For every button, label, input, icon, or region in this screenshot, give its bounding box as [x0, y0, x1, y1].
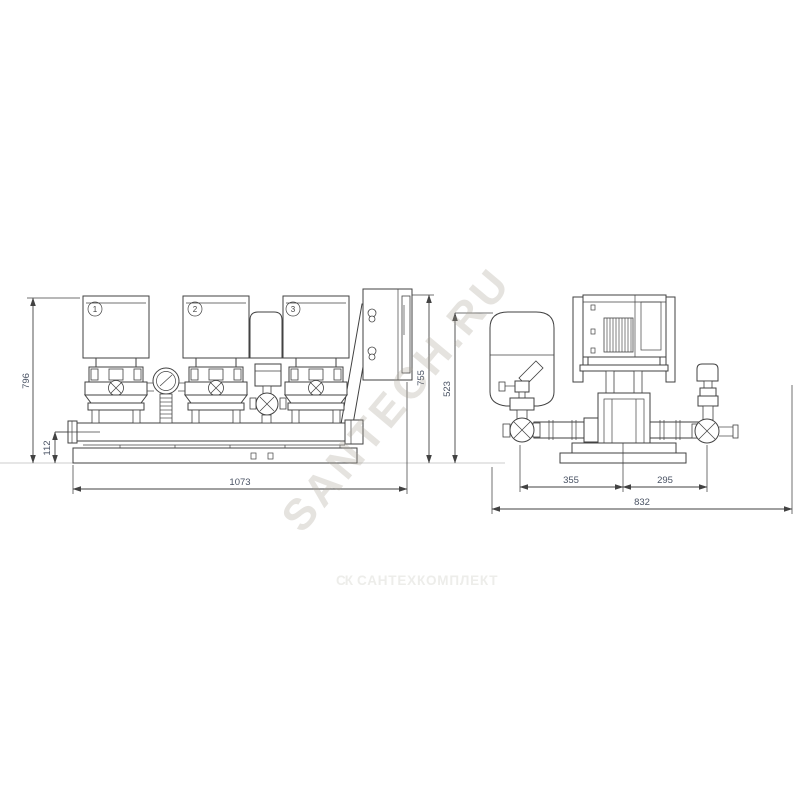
pump-1-motor: 1: [83, 296, 149, 358]
manifold: [55, 420, 363, 448]
dim-side-height-label: 523: [442, 381, 453, 397]
dim-cabinet-height-label: 755: [416, 370, 427, 386]
pump-2-number: 2: [193, 305, 198, 314]
motor-side: [573, 295, 675, 403]
page: 1 2 3: [0, 0, 800, 800]
dim-span-left-label: 355: [563, 475, 579, 486]
pump-units: 1 2 3: [83, 296, 349, 423]
technical-drawing: 1 2 3: [0, 0, 800, 800]
dim-span-right-label: 295: [657, 475, 673, 486]
dim-overall-height-label: 796: [21, 373, 32, 389]
dim-pipe-height-label: 112: [42, 440, 53, 455]
dim-overall-width-label: 1073: [229, 477, 250, 488]
pump-1-number: 1: [93, 305, 98, 314]
control-cabinet: [363, 289, 412, 380]
right-valve-group: [692, 364, 738, 443]
pump-1-head: [85, 358, 147, 423]
pump-3-motor: 3: [283, 296, 349, 358]
rear-casing: [250, 312, 282, 358]
pump-3-head: [285, 358, 347, 423]
pump-2-motor: 2: [183, 296, 249, 358]
pump-column-side: [598, 393, 650, 443]
pressure-gauge: [153, 368, 179, 423]
pump-3-number: 3: [291, 305, 296, 314]
base-frame: [73, 448, 357, 463]
motor-valve: [250, 364, 286, 423]
dim-side-width-label: 832: [634, 497, 650, 508]
pump-2-head: [185, 358, 247, 423]
side-view-drawing: 523 355 295 832: [442, 295, 792, 514]
